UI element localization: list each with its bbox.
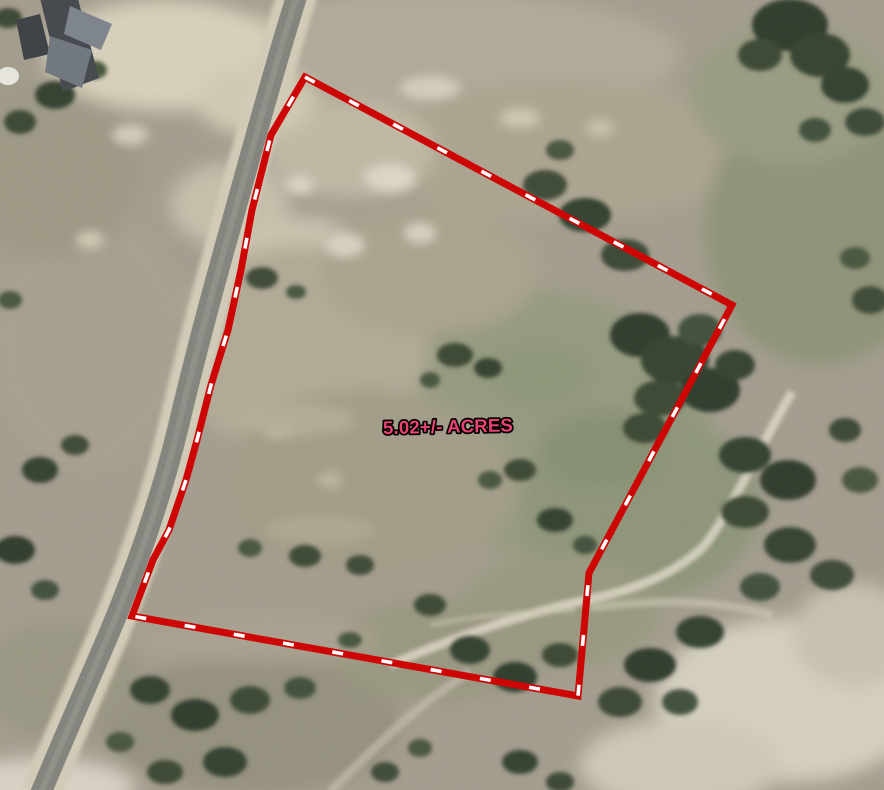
aerial-imagery: 5.02+/- ACRES <box>0 0 884 790</box>
aerial-parcel-map: 5.02+/- ACRES <box>0 0 884 790</box>
acreage-label: 5.02+/- ACRES <box>383 414 513 438</box>
